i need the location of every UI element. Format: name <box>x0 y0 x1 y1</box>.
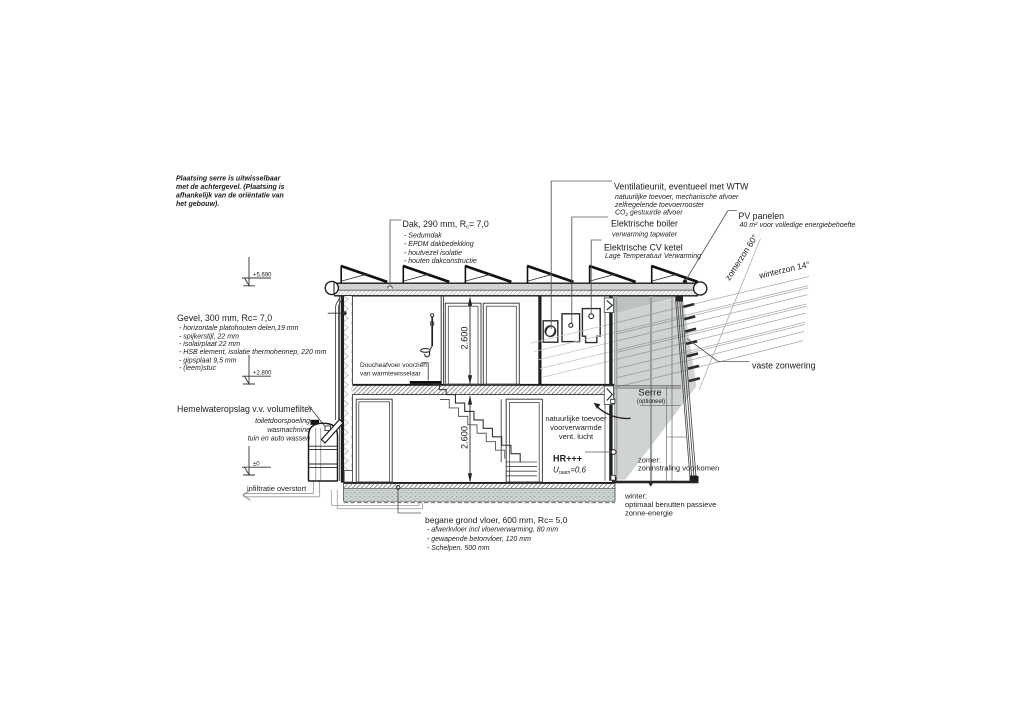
svg-text:- isolairplaat 22 mm: - isolairplaat 22 mm <box>179 341 240 348</box>
svg-text:- gewapende betonvloer, 120 mm: - gewapende betonvloer, 120 mm <box>427 536 531 543</box>
svg-text:natuurlijke toevoer: natuurlijke toevoer <box>545 414 607 423</box>
svg-text:- EPDM dakbedekking: - EPDM dakbedekking <box>404 241 474 248</box>
svg-text:vent. lucht: vent. lucht <box>559 432 594 441</box>
svg-text:infiltratie overstort: infiltratie overstort <box>247 484 307 493</box>
svg-text:- Sedumdak: - Sedumdak <box>404 233 442 240</box>
svg-text:Plaatsing serre is uitwisselba: Plaatsing serre is uitwisselbaar <box>176 176 282 183</box>
svg-text:Serre: Serre <box>638 388 661 399</box>
svg-text:Elektrische boiler: Elektrische boiler <box>611 219 678 229</box>
svg-text:- houtvezel isolatie: - houtvezel isolatie <box>404 250 462 257</box>
svg-text:(optioneel): (optioneel) <box>637 399 665 405</box>
svg-text:- afwerkvloer incl vloerverwar: - afwerkvloer incl vloerverwarming, 80 m… <box>427 527 558 534</box>
svg-text:Uraam=0,6: Uraam=0,6 <box>553 466 587 476</box>
svg-text:- houten dakconstructie: - houten dakconstructie <box>404 258 477 265</box>
svg-text:met de achtergevel. (Plaatsing: met de achtergevel. (Plaatsing is <box>176 184 285 191</box>
svg-text:2.600: 2.600 <box>459 426 469 449</box>
svg-text:voorverwarmde: voorverwarmde <box>550 423 602 432</box>
svg-text:het gebouw).: het gebouw). <box>176 201 219 208</box>
svg-text:verwarming tapwater: verwarming tapwater <box>612 232 678 239</box>
svg-text:natuurlijke toevoer, mechanisc: natuurlijke toevoer, mechanische afvoer <box>615 194 739 201</box>
svg-text:Doucheafvoer voorzien: Doucheafvoer voorzien <box>360 362 427 369</box>
svg-text:Gevel, 300 mm, Rc= 7,0: Gevel, 300 mm, Rc= 7,0 <box>177 313 272 323</box>
svg-text:toiletdoorspoeling: toiletdoorspoeling <box>255 418 310 425</box>
svg-text:Hemelwateropslag v.v. volumefi: Hemelwateropslag v.v. volumefilter <box>177 404 312 414</box>
svg-text:PV panelen: PV panelen <box>739 211 785 221</box>
svg-text:wasmachnine: wasmachnine <box>267 427 310 434</box>
svg-text:begane grond vloer, 600 mm, Rc: begane grond vloer, 600 mm, Rc= 5,0 <box>425 515 568 525</box>
svg-text:+5.690: +5.690 <box>253 272 272 278</box>
svg-text:zelfregelende toevoerrooster: zelfregelende toevoerrooster <box>614 202 705 209</box>
svg-text:Dak, 290 mm, Rc= 7,0: Dak, 290 mm, Rc= 7,0 <box>403 219 489 231</box>
svg-text:- Schelpen, 500 mm: - Schelpen, 500 mm <box>427 545 490 552</box>
svg-text:afhankelijk van de oriëntatie: afhankelijk van de oriëntatie van <box>176 193 284 200</box>
svg-text:- gipsplaat 9,5 mm: - gipsplaat 9,5 mm <box>179 358 237 365</box>
svg-text:2.600: 2.600 <box>459 327 469 350</box>
svg-text:- HSB element, isolatie thermo: - HSB element, isolatie thermohennep, 22… <box>179 349 327 356</box>
svg-text:Ventilatieunit, eventueel met: Ventilatieunit, eventueel met WTW <box>614 182 749 192</box>
svg-text:CO2 gestuurde afvoer: CO2 gestuurde afvoer <box>615 210 683 217</box>
svg-text:Elektrische CV ketel: Elektrische CV ketel <box>604 243 683 253</box>
svg-text:zonne-energie: zonne-energie <box>625 509 673 518</box>
svg-text:zoninstraling voorkomen: zoninstraling voorkomen <box>638 464 719 473</box>
svg-text:van warmtewisselaar: van warmtewisselaar <box>360 371 422 378</box>
svg-text:40 m2 voor volledige energiebe: 40 m2 voor volledige energiebehoefte <box>740 221 856 229</box>
svg-text:- horizontale platohouten dele: - horizontale platohouten delen,19 mm <box>179 325 299 332</box>
svg-text:- (leem)stuc: - (leem)stuc <box>179 365 216 372</box>
svg-text:tuin en auto wassen: tuin en auto wassen <box>248 435 310 442</box>
svg-text:Lage Temperatuur Verwarming: Lage Temperatuur Verwarming <box>605 253 701 260</box>
svg-text:±0: ±0 <box>253 462 260 468</box>
svg-text:HR+++: HR+++ <box>553 454 582 464</box>
svg-text:- spijkerstijl, 22 mm: - spijkerstijl, 22 mm <box>179 334 239 341</box>
svg-text:vaste zonwering: vaste zonwering <box>752 361 816 371</box>
svg-text:+2.800: +2.800 <box>253 371 272 377</box>
